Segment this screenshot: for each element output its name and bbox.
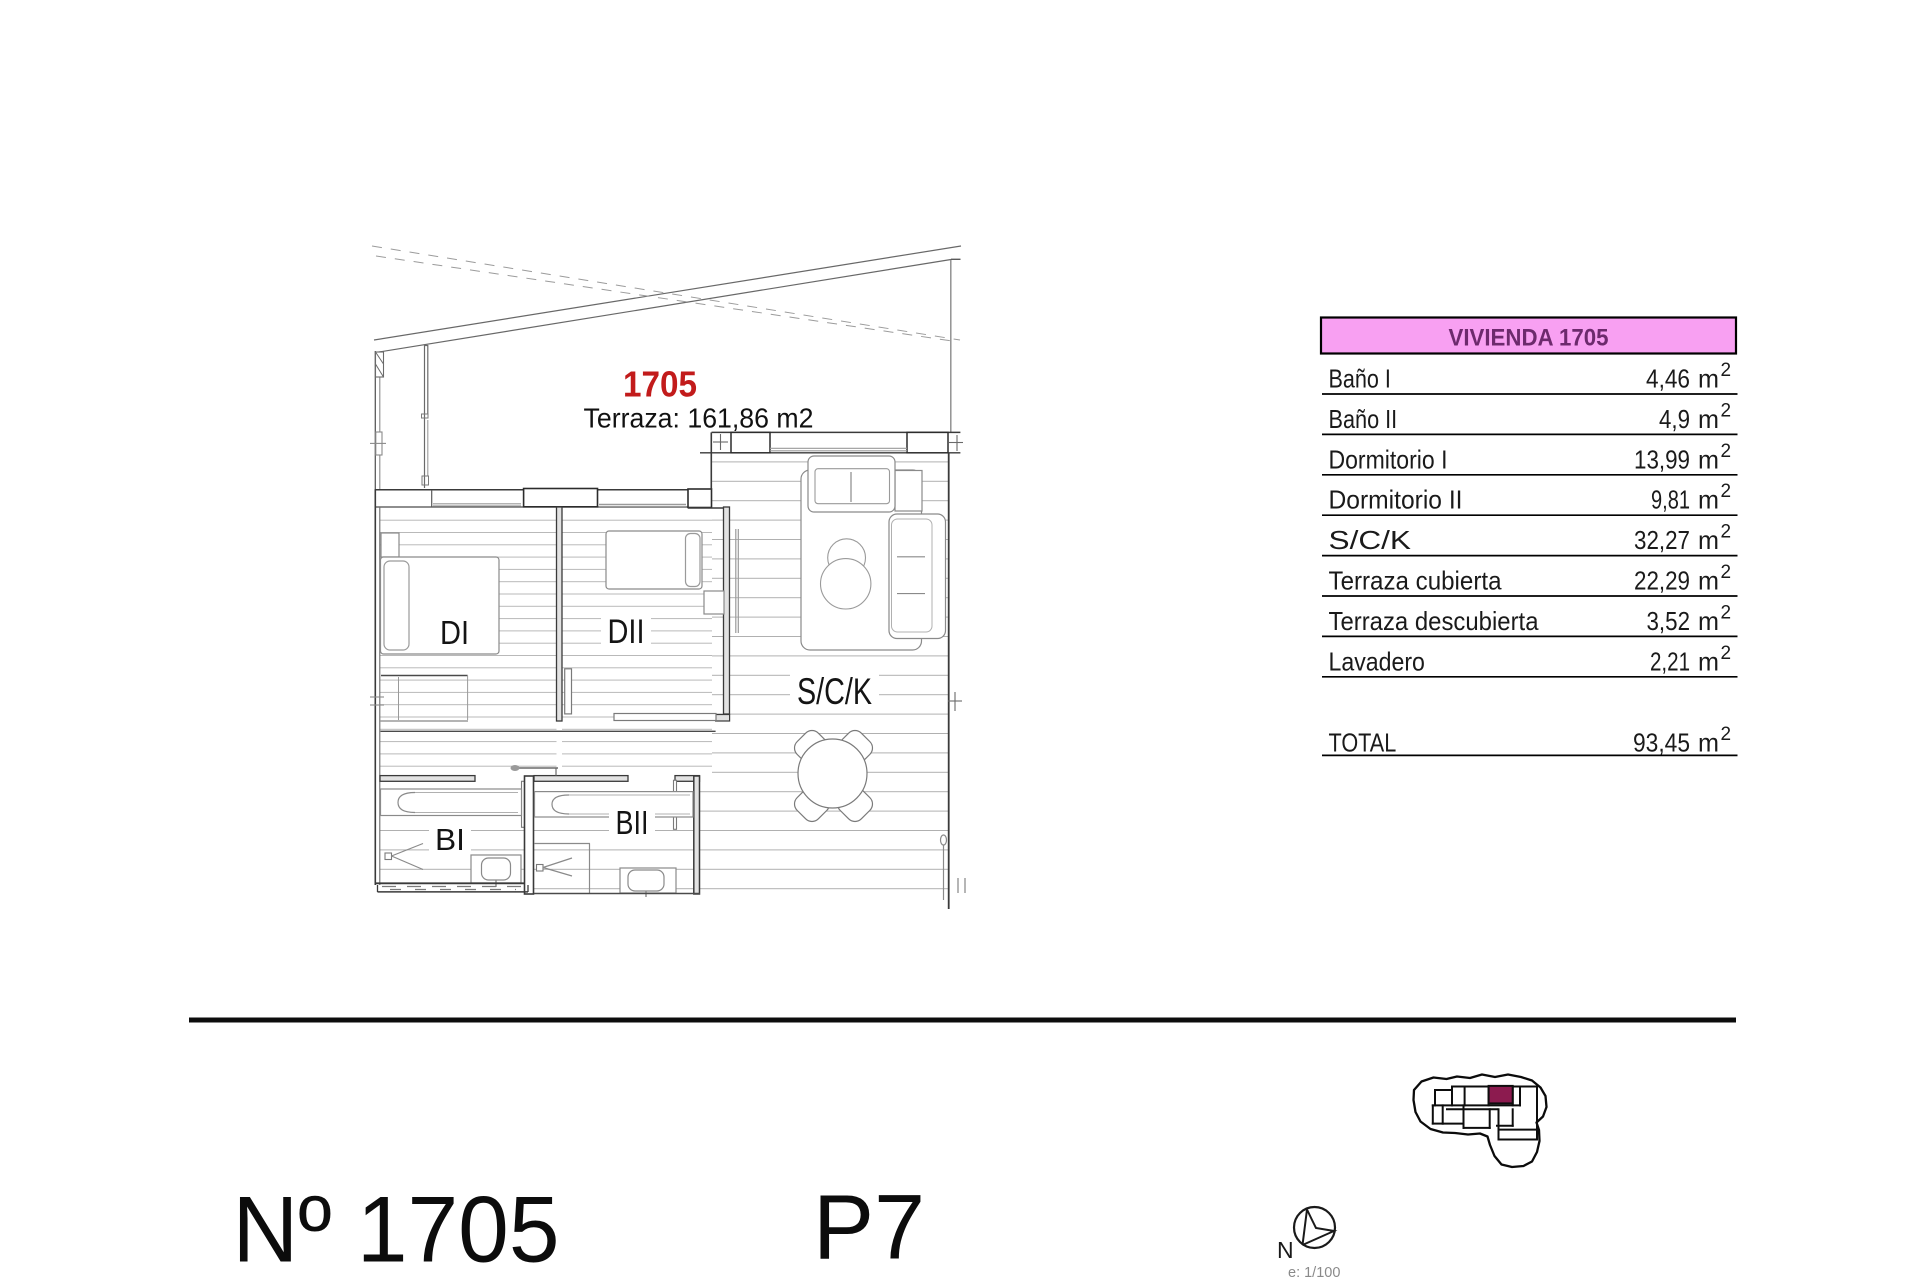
- svg-text:Nº 1705: Nº 1705: [233, 1177, 560, 1280]
- svg-text:3,52: 3,52: [1647, 606, 1691, 636]
- svg-text:9,81: 9,81: [1651, 485, 1690, 515]
- svg-text:32,27: 32,27: [1634, 525, 1690, 555]
- svg-text:DI: DI: [440, 614, 469, 651]
- svg-text:2,21: 2,21: [1650, 646, 1690, 676]
- svg-text:13,99: 13,99: [1634, 444, 1690, 474]
- svg-text:S/C/K: S/C/K: [797, 671, 872, 712]
- svg-text:2: 2: [1721, 602, 1732, 623]
- svg-text:S/C/K: S/C/K: [1329, 525, 1412, 555]
- svg-text:2: 2: [1721, 724, 1732, 745]
- svg-text:BI: BI: [435, 822, 465, 857]
- svg-text:TOTAL: TOTAL: [1329, 727, 1397, 757]
- svg-text:Terraza descubierta: Terraza descubierta: [1329, 606, 1539, 636]
- svg-text:VIVIENDA 1705: VIVIENDA 1705: [1449, 325, 1609, 352]
- svg-text:Baño I: Baño I: [1329, 364, 1391, 394]
- svg-text:93,45: 93,45: [1633, 727, 1690, 757]
- svg-text:2: 2: [1721, 643, 1732, 664]
- svg-text:4,9: 4,9: [1659, 404, 1690, 434]
- svg-text:2: 2: [1721, 400, 1732, 421]
- svg-text:P7: P7: [813, 1177, 925, 1279]
- svg-text:Terraza: 161,86 m2: Terraza: 161,86 m2: [584, 403, 814, 434]
- svg-text:4,46: 4,46: [1646, 364, 1690, 394]
- svg-text:Dormitorio I: Dormitorio I: [1329, 444, 1448, 474]
- svg-text:m: m: [1698, 444, 1719, 474]
- svg-text:m: m: [1698, 364, 1719, 394]
- svg-text:m: m: [1698, 606, 1719, 636]
- svg-text:m: m: [1698, 404, 1719, 434]
- svg-text:m: m: [1698, 525, 1719, 555]
- svg-text:e: 1/100: e: 1/100: [1288, 1265, 1340, 1280]
- svg-text:N: N: [1277, 1237, 1294, 1263]
- svg-text:DII: DII: [608, 613, 645, 651]
- svg-text:2: 2: [1721, 360, 1732, 381]
- svg-text:Lavadero: Lavadero: [1329, 646, 1425, 676]
- svg-text:22,29: 22,29: [1634, 566, 1690, 596]
- svg-text:m: m: [1698, 727, 1719, 757]
- svg-text:2: 2: [1721, 481, 1732, 502]
- svg-text:Terraza cubierta: Terraza cubierta: [1329, 566, 1502, 596]
- svg-text:m: m: [1698, 646, 1719, 676]
- svg-text:Baño II: Baño II: [1329, 404, 1398, 434]
- svg-text:BII: BII: [616, 804, 649, 841]
- svg-text:m: m: [1698, 485, 1719, 515]
- svg-text:Dormitorio II: Dormitorio II: [1329, 485, 1463, 515]
- svg-text:m: m: [1698, 566, 1719, 596]
- svg-text:2: 2: [1721, 562, 1732, 583]
- svg-text:2: 2: [1721, 522, 1732, 543]
- svg-text:2: 2: [1721, 441, 1732, 462]
- svg-text:1705: 1705: [623, 364, 697, 405]
